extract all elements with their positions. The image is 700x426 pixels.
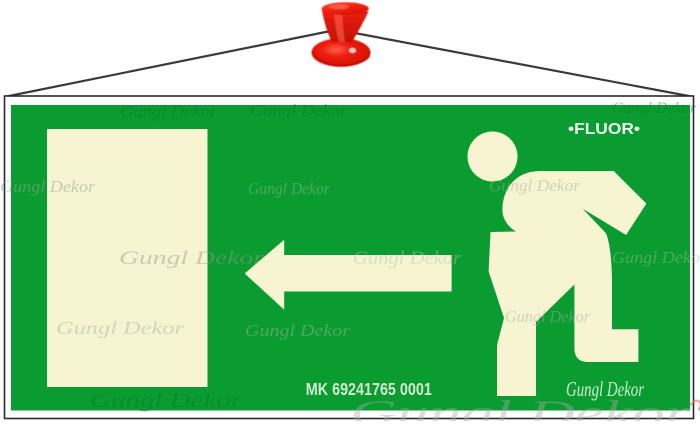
svg-text:Gungl Dekor: Gungl Dekor [566, 377, 645, 401]
svg-text:Gungl Dekor: Gungl Dekor [489, 176, 580, 195]
svg-text:Gungl Dekor: Gungl Dekor [612, 248, 700, 267]
svg-text:MK 69241765 0001: MK 69241765 0001 [306, 379, 432, 399]
svg-text:Gungl Dekor: Gungl Dekor [120, 102, 217, 121]
svg-text:•FLUOR•: •FLUOR• [568, 121, 640, 138]
svg-text:Gungl Dekor: Gungl Dekor [250, 101, 347, 120]
svg-text:Gungl Dekor: Gungl Dekor [612, 100, 697, 117]
svg-text:Gungl Dekor: Gungl Dekor [56, 318, 185, 338]
svg-text:Gungl Dekor: Gungl Dekor [505, 307, 590, 326]
svg-text:Gungl Dekor: Gungl Dekor [245, 321, 350, 340]
svg-text:Gungl Dekor: Gungl Dekor [353, 248, 462, 269]
svg-text:Gungl Dekor: Gungl Dekor [90, 390, 242, 412]
svg-text:Gungl Dekor: Gungl Dekor [119, 248, 265, 269]
svg-text:Gungl Dekor: Gungl Dekor [0, 177, 95, 196]
svg-text:Gungl Dekor: Gungl Dekor [248, 179, 330, 198]
